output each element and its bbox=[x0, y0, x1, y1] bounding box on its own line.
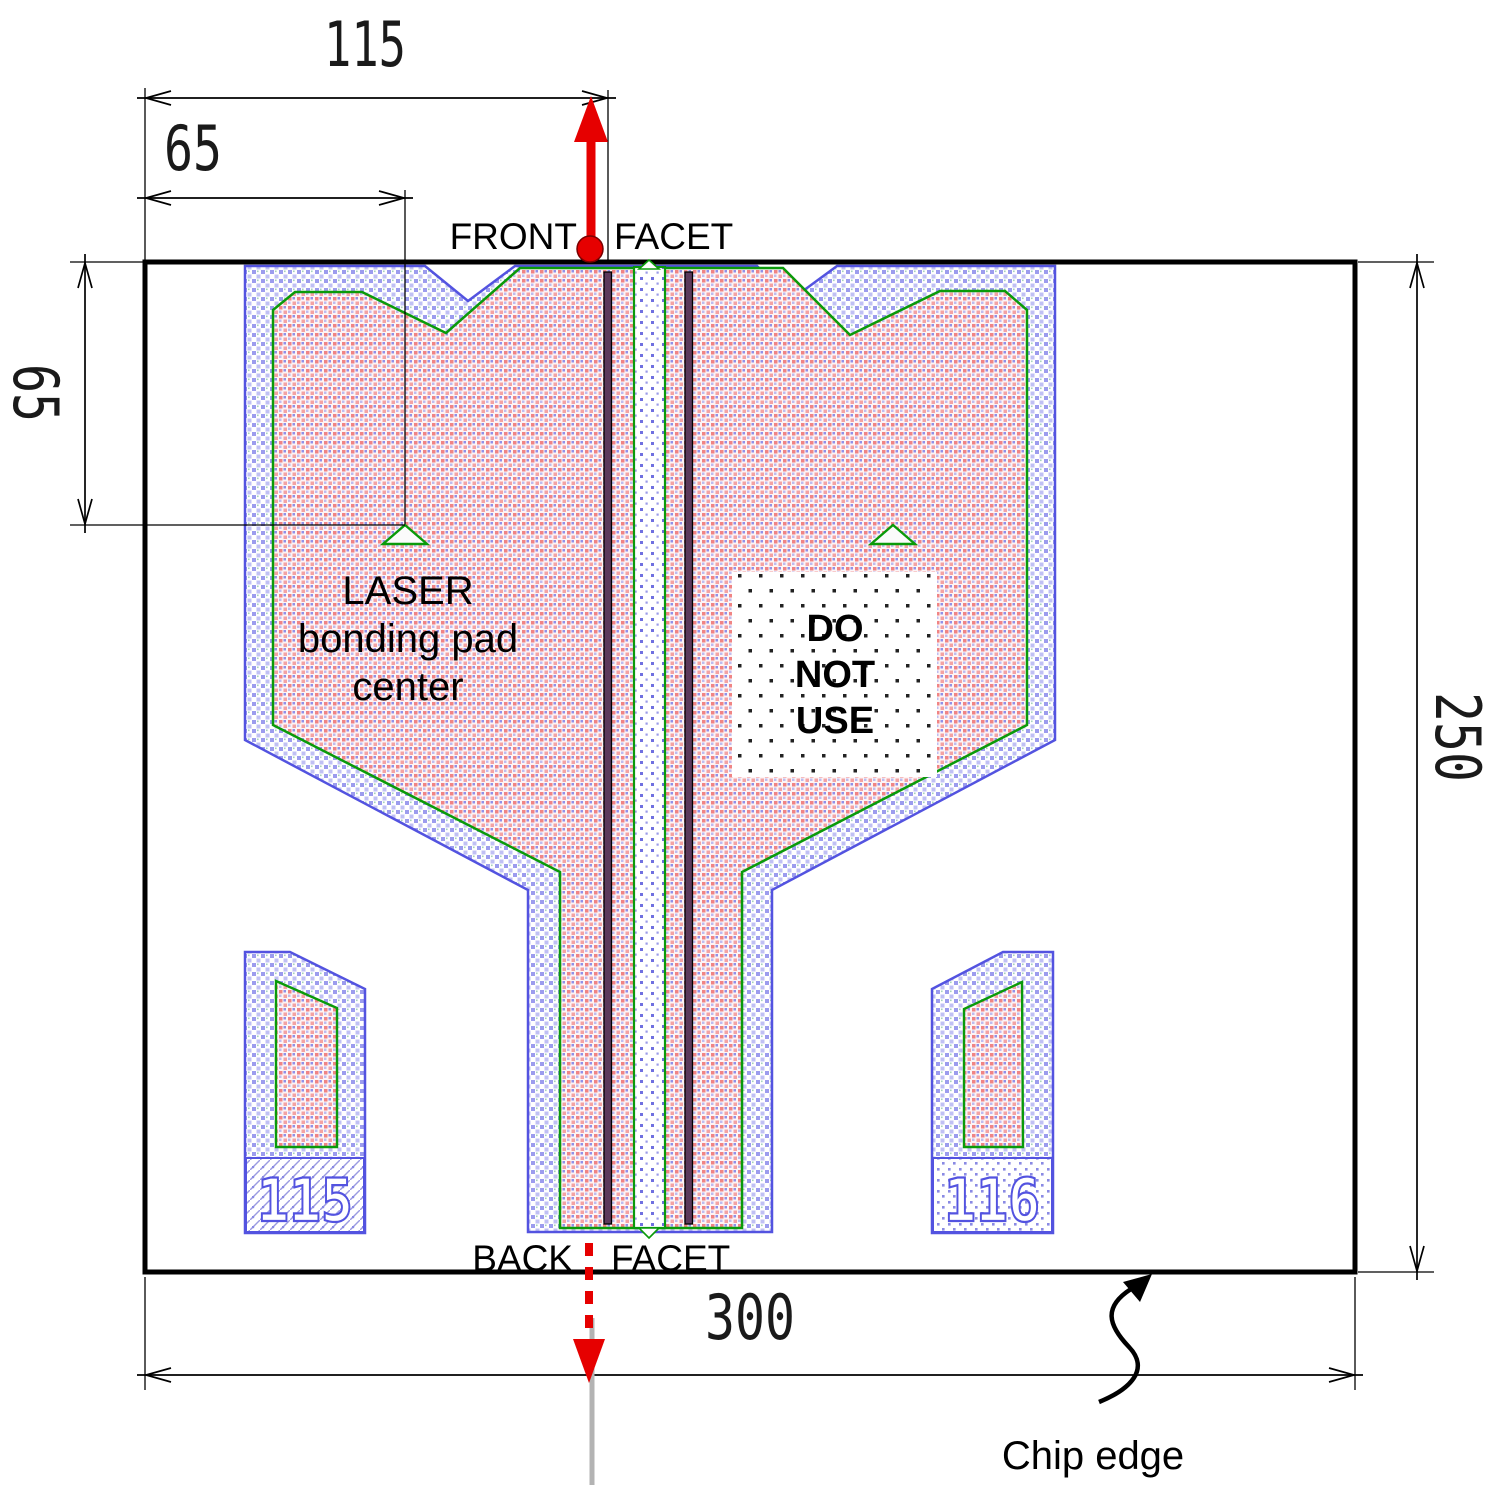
chip-edge-label: Chip edge bbox=[1002, 1434, 1184, 1478]
front-facet-point-icon bbox=[577, 236, 603, 262]
dim-pad-offset-y: 65 bbox=[0, 364, 72, 422]
cad-canvas: 115 116 bbox=[0, 0, 1498, 1485]
do-not-use-line2: NOT bbox=[795, 654, 875, 696]
chip-id-left: 115 bbox=[257, 1166, 353, 1236]
chip-id-pad-left: 115 bbox=[245, 952, 365, 1236]
laser-pad-label-line1: LASER bbox=[342, 569, 473, 613]
dim-top-width: 115 bbox=[324, 8, 406, 81]
chip-edge-callout-arrowhead-icon bbox=[1123, 1274, 1152, 1302]
ridge-right bbox=[685, 272, 693, 1224]
chip-id-pad-right: 116 bbox=[932, 952, 1053, 1236]
do-not-use-line1: DO bbox=[807, 608, 864, 650]
laser-pad-label-line3: center bbox=[352, 665, 463, 709]
back-facet-label-left: BACK bbox=[472, 1238, 573, 1279]
chip-id-right: 116 bbox=[944, 1166, 1040, 1236]
front-emission-arrow-icon bbox=[574, 96, 608, 142]
chip-edge-callout-curve bbox=[1099, 1289, 1138, 1402]
front-facet-label-left: FRONT bbox=[450, 216, 577, 257]
back-facet-label-right: FACET bbox=[611, 1238, 730, 1279]
ridge-left bbox=[604, 272, 612, 1224]
back-emission-arrow-icon bbox=[573, 1339, 605, 1383]
dim-pad-offset-x: 65 bbox=[164, 112, 222, 185]
laser-chip-drawing: 115 116 bbox=[0, 0, 1498, 1485]
do-not-use-line3: USE bbox=[796, 700, 874, 742]
dim-chip-width: 300 bbox=[705, 1281, 795, 1354]
laser-pad-label-line2: bonding pad bbox=[298, 617, 518, 661]
waveguide-stripe bbox=[634, 267, 665, 1228]
front-facet-label-right: FACET bbox=[614, 216, 733, 257]
dim-chip-height: 250 bbox=[1421, 692, 1494, 782]
